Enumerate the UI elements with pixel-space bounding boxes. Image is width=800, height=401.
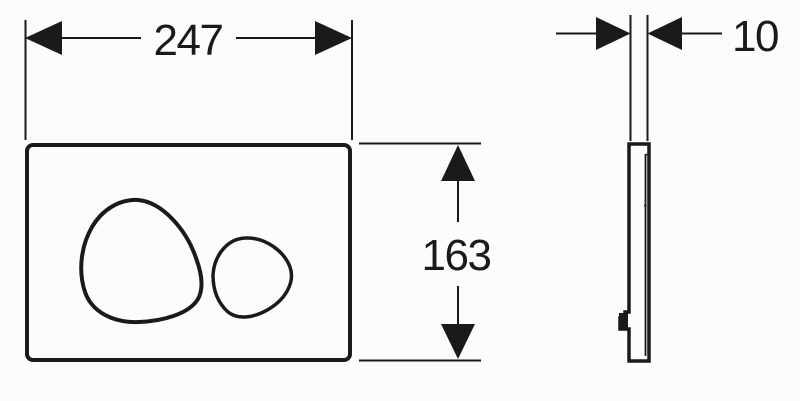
height-arrow-down-icon (441, 324, 475, 359)
depth-arrow-left-icon (648, 17, 683, 50)
technical-drawing-canvas: 247 163 10 (0, 0, 800, 401)
width-arrow-left-icon (25, 21, 62, 55)
width-arrow-right-icon (315, 21, 352, 55)
front-view (27, 145, 350, 360)
depth-arrow-right-icon (596, 17, 631, 50)
mounting-tab (619, 313, 628, 328)
width-dimension-label: 247 (154, 16, 223, 65)
depth-dimension-label: 10 (732, 12, 778, 61)
height-dimension-label: 163 (422, 231, 491, 280)
side-view (619, 144, 649, 361)
depth-dimension: 10 (556, 12, 778, 141)
flush-plate-front-outline (27, 145, 350, 360)
flush-plate-dimension-drawing: 247 163 10 (0, 0, 800, 401)
width-dimension: 247 (25, 16, 352, 140)
height-dimension: 163 (359, 144, 490, 361)
height-arrow-up-icon (441, 145, 475, 181)
